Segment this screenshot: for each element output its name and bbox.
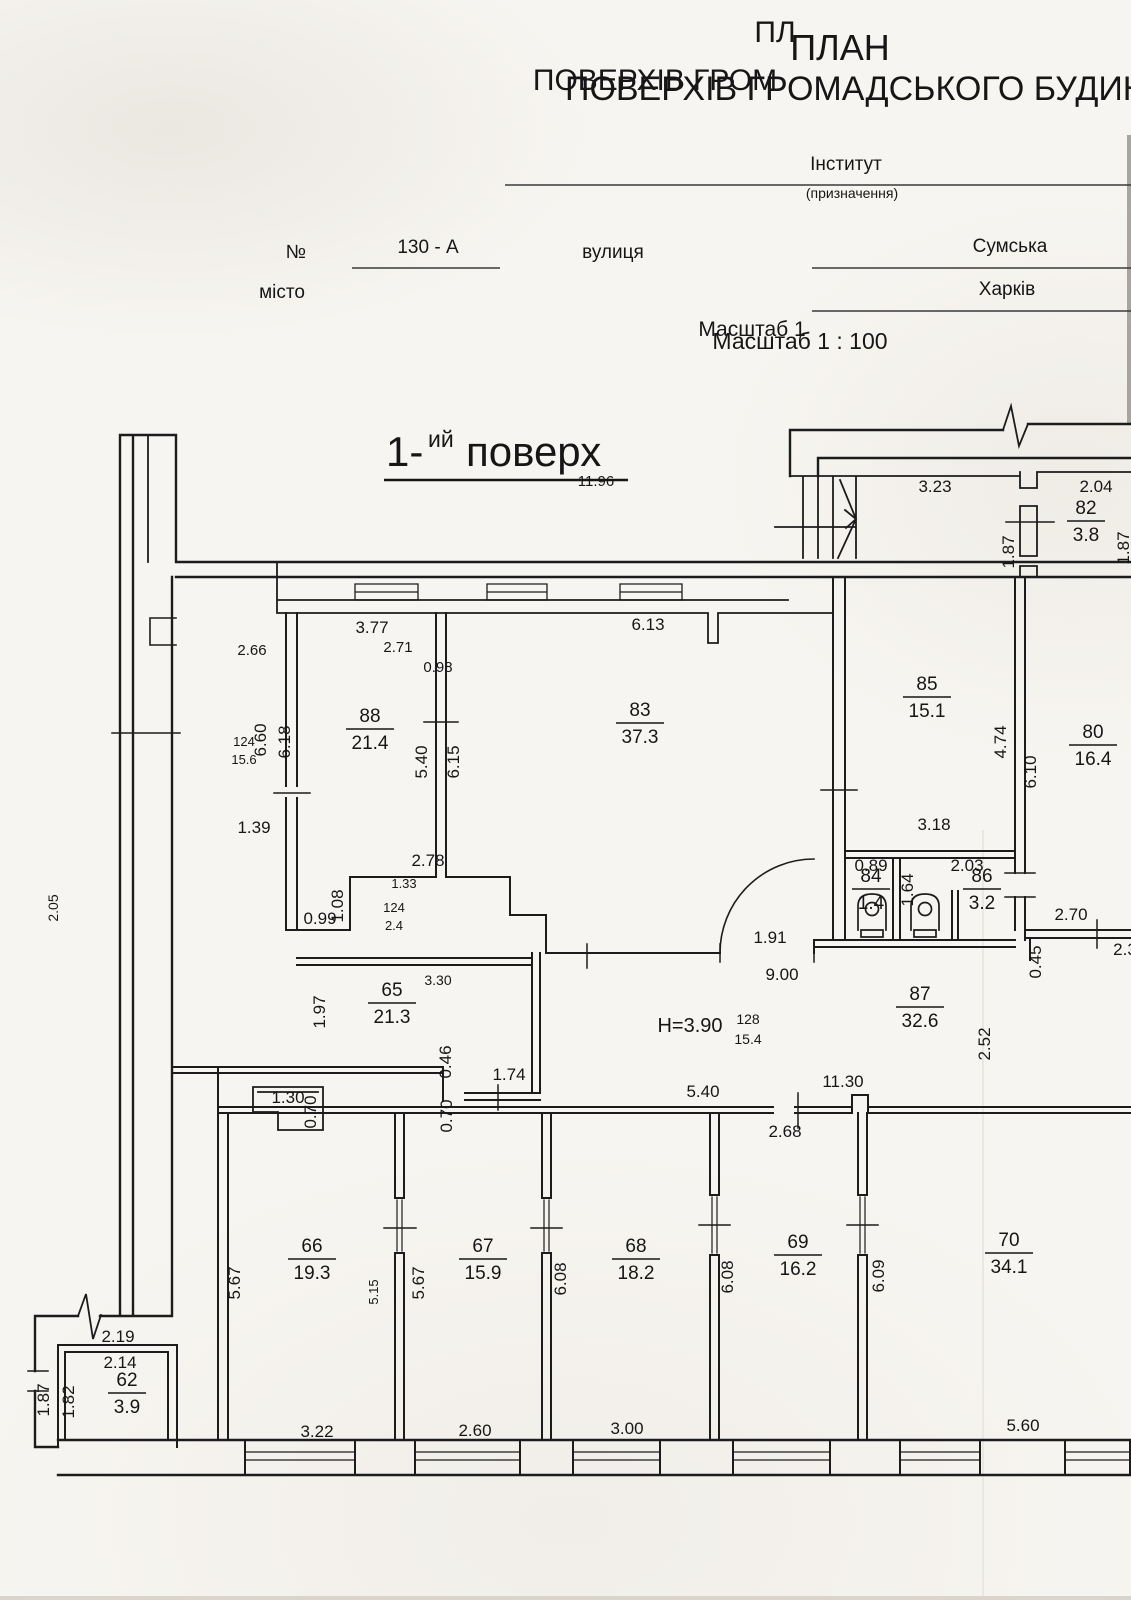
dimension-label: 3.23 (918, 477, 951, 496)
dimension-label: 1.39 (237, 818, 270, 837)
room-number-label: 70 (998, 1230, 1019, 1251)
city-value: Харків (979, 279, 1035, 300)
dimension-label: 1.64 (898, 873, 917, 906)
room-area-label: 18.2 (618, 1263, 655, 1284)
dimension-label: 3.22 (300, 1422, 333, 1441)
plan-labels-layer: 8821.48337.38515.18016.4823.8841.4863.28… (34, 477, 1131, 1441)
dimension-label: 2.04 (1079, 477, 1112, 496)
floor-plan-drawing: ПЛПОВЕРХІВ ГРОММасштаб 111.962.662.710.9… (0, 0, 1131, 1600)
ghost-text: 2.71 (383, 639, 412, 656)
floor-title-word: поверх (466, 428, 601, 475)
toilet-icon (919, 903, 932, 916)
room-area-label: 19.3 (294, 1263, 331, 1284)
dimension-label: 1.87 (34, 1383, 53, 1416)
ghost-text: 2.66 (237, 642, 266, 659)
ghost-text: 3.30 (424, 972, 451, 988)
ghost-text: 2.05 (45, 894, 61, 921)
dimension-label: 5.67 (225, 1266, 244, 1299)
room-number-label: 65 (381, 980, 402, 1001)
street-label: вулиця (582, 242, 644, 263)
dimension-label: 0.70 (437, 1099, 456, 1132)
dimension-label: 2.78 (411, 851, 444, 870)
dimension-label: 3.00 (610, 1419, 643, 1438)
dimension-label: 3.77 (355, 618, 388, 637)
dimension-label: 6.18 (275, 725, 294, 758)
number-label: № (286, 242, 306, 263)
dimension-label: 1.97 (310, 995, 329, 1028)
scan-edge-artifact (1127, 135, 1131, 425)
city-label: місто (259, 282, 305, 303)
dimension-label: 0.45 (1026, 945, 1045, 978)
dimension-label: 2.19 (101, 1327, 134, 1346)
room-number-label: 85 (916, 674, 937, 695)
dimension-label: 6.09 (869, 1259, 888, 1292)
room-number-label: 69 (787, 1232, 808, 1253)
dimension-label: 2.03 (950, 856, 983, 875)
dimension-label: 2.68 (768, 1122, 801, 1141)
ghost-text: 11.96 (578, 473, 614, 490)
floor-plan-walls (28, 406, 1131, 1475)
dimension-label: 0.46 (436, 1045, 455, 1078)
dimension-label: 4.74 (991, 725, 1010, 758)
ghost-text: 0.98 (423, 659, 452, 676)
ghost-text: 1.33 (391, 876, 416, 891)
dimension-label: 5.67 (409, 1266, 428, 1299)
room-area-label: 21.3 (374, 1007, 411, 1028)
dimension-label: 6.60 (251, 723, 270, 756)
dimension-label: 0.89 (854, 856, 887, 875)
room-area-label: 15.1 (909, 701, 946, 722)
ghost-text: 5.15 (366, 1279, 381, 1304)
room-number-label: 80 (1082, 722, 1103, 743)
dimension-label: 6.13 (631, 615, 664, 634)
room-area-label: 34.1 (991, 1257, 1028, 1278)
dimension-label: 2.3 (1113, 940, 1131, 959)
room-area-label: 32.6 (902, 1011, 939, 1032)
dimension-label: 6.15 (444, 745, 463, 778)
room-number-label: 67 (472, 1236, 493, 1257)
purpose-caption: (призначення) (806, 185, 898, 201)
dimension-label: 2.70 (1054, 905, 1087, 924)
ghost-text: 2.4 (385, 918, 403, 933)
page-title-line1: ПЛАН (790, 27, 890, 68)
floor-title-prefix: 1- (386, 428, 423, 475)
dimension-label: 1.30 (271, 1088, 304, 1107)
ghost-text: 124 (383, 900, 405, 915)
dimension-label: 6.10 (1021, 755, 1040, 788)
dimension-label: 2.52 (975, 1027, 994, 1060)
dimension-label: 11.30 (822, 1072, 863, 1091)
ghost-text: 128 (736, 1011, 760, 1027)
dimension-label: 2.14 (103, 1353, 136, 1372)
room-area-label: 21.4 (352, 733, 389, 754)
floor-title-sup: ий (428, 426, 454, 452)
room-area-label: 15.9 (465, 1263, 502, 1284)
room-area-label: 3.9 (114, 1397, 140, 1418)
scale-label: Масштаб 1 : 100 (712, 328, 887, 354)
dimension-label: 1.82 (59, 1385, 78, 1418)
dimension-label: 0.99 (303, 909, 336, 928)
dimension-label: 9.00 (765, 965, 798, 984)
institute-value: Інститут (810, 154, 882, 175)
room-number-label: 83 (629, 700, 650, 721)
ghost-text: 15.4 (734, 1031, 761, 1047)
dimension-label: 6.08 (551, 1262, 570, 1295)
room-number-label: 82 (1075, 498, 1096, 519)
scanned-floor-plan-page: ПЛПОВЕРХІВ ГРОММасштаб 111.962.662.710.9… (0, 0, 1131, 1600)
dimension-label: 1.91 (753, 928, 786, 947)
dimension-label: 2.60 (458, 1421, 491, 1440)
bleed-through-text-layer: ПЛПОВЕРХІВ ГРОММасштаб 111.962.662.710.9… (45, 16, 806, 1305)
dimension-label: 1.87 (999, 535, 1018, 568)
room-area-label: 16.2 (780, 1259, 817, 1280)
page-title-line2: ПОВЕРХІВ ГРОМАДСЬКОГО БУДИНКУ (565, 70, 1131, 108)
dimension-label: 1.74 (492, 1065, 525, 1084)
dimension-label: H=3.90 (657, 1015, 722, 1037)
dimension-label: 5.40 (412, 745, 431, 778)
room-number-label: 87 (909, 984, 930, 1005)
dimension-label: 1.87 (1114, 531, 1131, 564)
room-area-label: 3.8 (1073, 525, 1099, 546)
room-number-label: 66 (301, 1236, 322, 1257)
room-area-label: 1.4 (858, 893, 885, 914)
number-value: 130 - А (397, 237, 459, 258)
room-number-label: 88 (359, 706, 380, 727)
room-area-label: 3.2 (969, 893, 995, 914)
room-number-label: 62 (116, 1370, 137, 1391)
scan-bottom-edge (0, 1596, 1131, 1600)
dimension-label: 5.40 (686, 1082, 719, 1101)
room-area-label: 16.4 (1075, 749, 1112, 770)
dimension-label: 5.60 (1006, 1416, 1039, 1435)
room-area-label: 37.3 (622, 727, 659, 748)
street-value: Сумська (973, 236, 1048, 257)
room-number-label: 68 (625, 1236, 646, 1257)
dimension-label: 6.08 (718, 1260, 737, 1293)
dimension-label: 3.18 (917, 815, 950, 834)
dimension-label: 0.70 (301, 1095, 320, 1128)
